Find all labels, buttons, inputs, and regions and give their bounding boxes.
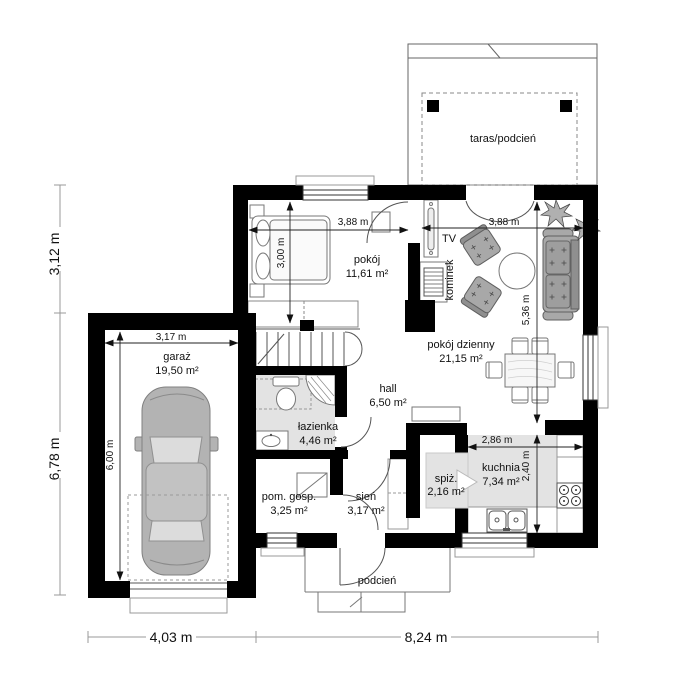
kitchen-window [462, 533, 527, 548]
dim-overall-left-lower: 6,78 m [46, 438, 62, 481]
room-label-sien: sień [356, 491, 376, 503]
terrace [408, 44, 597, 185]
dining-chair [558, 362, 574, 378]
dim-overall-bottom-right: 8,24 m [405, 629, 448, 645]
garage-door [130, 583, 227, 613]
fireplace [420, 262, 447, 302]
utility-window [267, 533, 297, 548]
terrace-post [560, 100, 572, 112]
dim-kitchen-height: 2,40 m [521, 451, 532, 482]
room-label-pokoj: pokój [354, 254, 380, 266]
stairs [248, 329, 362, 366]
nightstand [250, 284, 264, 297]
room-area-garaz: 19,50 m² [155, 365, 199, 377]
dim-overall-left-upper: 3,12 m [46, 233, 62, 276]
bedroom-window [303, 185, 368, 200]
living-furniture [412, 200, 600, 421]
coffee-table [499, 253, 535, 289]
room-area-hall: 6,50 m² [369, 397, 407, 409]
kitchen-sink [487, 509, 527, 532]
armchair [459, 224, 502, 267]
dim-bedroom-width: 3,88 m [338, 217, 369, 228]
bed [252, 216, 330, 284]
bathroom-door-arc [341, 417, 371, 447]
room-area-spiz: 2,16 m² [427, 486, 465, 498]
dim-living-height: 5,36 m [521, 295, 532, 326]
terrace-post [427, 100, 439, 112]
room-label-kuchnia: kuchnia [482, 462, 521, 474]
armchair [460, 275, 503, 318]
floor-plan-drawing: taras/podcień pokój 11,61 m² pokój dzien… [0, 0, 699, 700]
bedroom-cabinet [372, 212, 390, 232]
dim-bedroom-height: 3,00 m [276, 238, 287, 269]
sideboard [412, 407, 460, 421]
dim-garage-height: 6,00 m [105, 440, 116, 471]
room-area-pokoj-dzienny: 21,15 m² [439, 353, 483, 365]
car [135, 387, 218, 575]
dim-garage-width: 3,17 m [156, 332, 187, 343]
dining-chair [486, 362, 502, 378]
room-label-garaz: garaż [163, 351, 191, 363]
bedroom-furniture [248, 205, 390, 327]
room-label-hall: hall [379, 383, 396, 395]
dining-set [486, 338, 574, 403]
room-area-kuchnia: 7,34 m² [482, 476, 520, 488]
room-area-pokoj: 11,61 m² [346, 268, 389, 280]
dim-overall-bottom-left: 4,03 m [150, 629, 193, 645]
floor-plan-page: taras/podcień pokój 11,61 m² pokój dzien… [0, 0, 699, 700]
dining-chair [512, 338, 528, 354]
tv-unit [424, 200, 438, 257]
room-area-pom-gosp: 3,25 m² [270, 505, 308, 517]
dining-chair [512, 387, 528, 403]
stove [557, 483, 583, 508]
room-label-spiz: spiż. [435, 473, 458, 485]
room-area-sien: 3,17 m² [347, 505, 385, 517]
tv-label: TV [442, 233, 457, 245]
room-label-pokoj-dzienny: pokój dzienny [427, 339, 495, 351]
dim-living-width: 3,88 m [489, 217, 520, 228]
dining-chair [532, 387, 548, 403]
room-area-lazienka: 4,46 m² [299, 435, 337, 447]
kominek-label: kominek [444, 259, 456, 300]
dining-chair [532, 338, 548, 354]
dim-kitchen-width: 2,86 m [482, 435, 513, 446]
dining-table [505, 354, 555, 387]
room-label-pom-gosp: pom. gosp. [262, 491, 316, 503]
living-window [583, 335, 598, 400]
room-label-taras: taras/podcień [470, 133, 536, 145]
hallway-closet [388, 459, 408, 529]
room-label-lazienka: łazienka [298, 421, 339, 433]
room-label-podcien: podcień [358, 575, 397, 587]
washbasin [256, 431, 288, 450]
sofa [543, 229, 579, 320]
